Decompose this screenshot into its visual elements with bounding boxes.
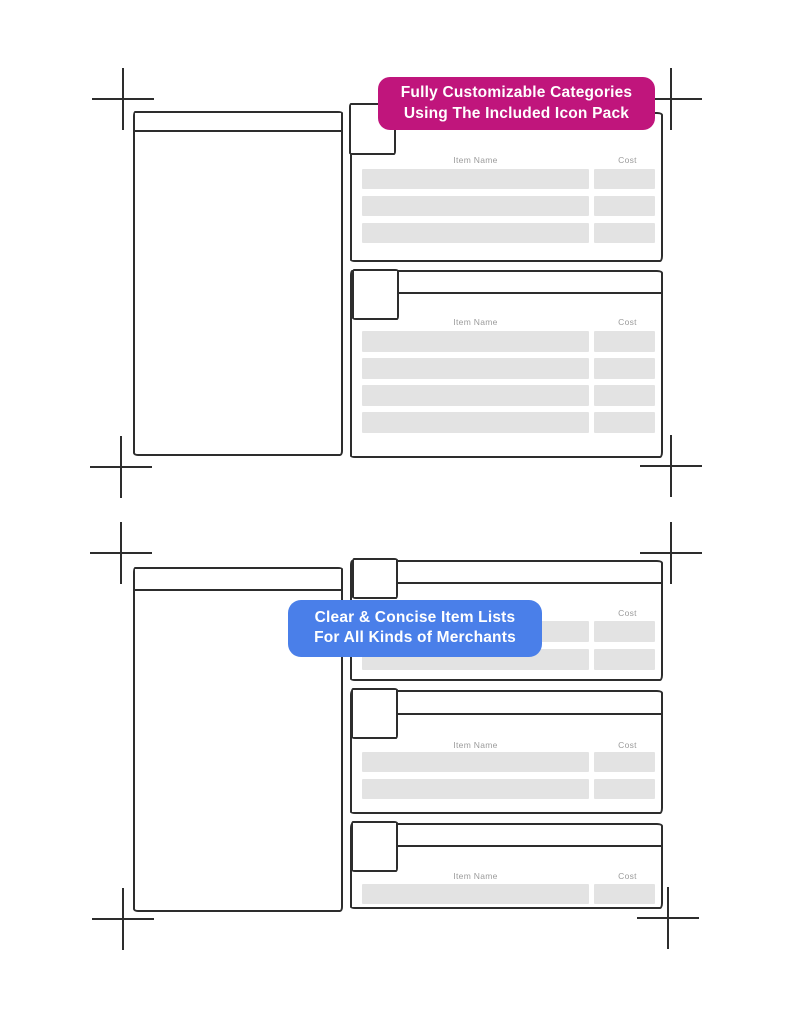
callout-line: Clear & Concise Item Lists (288, 608, 542, 628)
page-header-band (135, 113, 341, 132)
item-row-placeholder (362, 884, 655, 904)
item-list-panel: Item Name Cost (350, 690, 663, 814)
template-preview-graphic: Item Name Cost Item Name Cost Item Name … (0, 0, 794, 1021)
cost-bar (594, 358, 655, 379)
item-name-bar (362, 223, 589, 243)
item-name-bar (362, 385, 589, 406)
panel-title-band (352, 562, 661, 584)
cost-bar (594, 779, 655, 799)
item-row-placeholder (362, 169, 655, 189)
category-icon-placeholder (352, 558, 398, 599)
cost-bar (594, 752, 655, 772)
callout-line: Fully Customizable Categories (378, 82, 655, 103)
item-name-column-header: Item Name (362, 740, 589, 751)
cost-column-header: Cost (597, 740, 658, 751)
blank-left-page (133, 111, 343, 456)
cost-column-header: Cost (597, 608, 658, 619)
item-name-bar (362, 779, 589, 799)
item-row-placeholder (362, 223, 655, 243)
item-row-placeholder (362, 779, 655, 799)
item-row-placeholder (362, 752, 655, 772)
cost-column-header: Cost (597, 871, 658, 882)
item-name-bar (362, 752, 589, 772)
item-name-bar (362, 884, 589, 904)
category-icon-placeholder (352, 269, 399, 320)
item-list-panel: Item Name Cost (350, 823, 663, 909)
cost-bar (594, 196, 655, 216)
cost-bar (594, 169, 655, 189)
cost-bar (594, 621, 655, 642)
cost-bar (594, 223, 655, 243)
cost-bar (594, 884, 655, 904)
panel-title-band (352, 825, 661, 847)
item-name-bar (362, 169, 589, 189)
item-list-panel: Item Name Cost (350, 112, 663, 262)
cost-column-header: Cost (597, 317, 658, 328)
callout-line: Using The Included Icon Pack (378, 103, 655, 124)
item-name-bar (362, 358, 589, 379)
cost-bar (594, 649, 655, 670)
cost-bar (594, 412, 655, 433)
item-name-bar (362, 331, 589, 352)
item-row-placeholder (362, 331, 655, 352)
cost-column-header: Cost (597, 155, 658, 166)
category-icon-placeholder (351, 688, 398, 739)
item-name-bar (362, 412, 589, 433)
item-row-placeholder (362, 196, 655, 216)
item-row-placeholder (362, 358, 655, 379)
panel-title-band (352, 692, 661, 715)
blue-callout-badge: Clear & Concise Item Lists For All Kinds… (288, 600, 542, 657)
item-list-panel: Item Name Cost (350, 270, 663, 458)
item-row-placeholder (362, 385, 655, 406)
callout-line: For All Kinds of Merchants (288, 628, 542, 648)
cost-bar (594, 331, 655, 352)
item-name-bar (362, 196, 589, 216)
item-name-column-header: Item Name (362, 871, 589, 882)
item-row-placeholder (362, 412, 655, 433)
category-icon-placeholder (351, 821, 398, 872)
item-name-column-header: Item Name (362, 155, 589, 166)
cost-bar (594, 385, 655, 406)
pink-callout-badge: Fully Customizable Categories Using The … (378, 77, 655, 130)
page-header-band (135, 569, 341, 591)
